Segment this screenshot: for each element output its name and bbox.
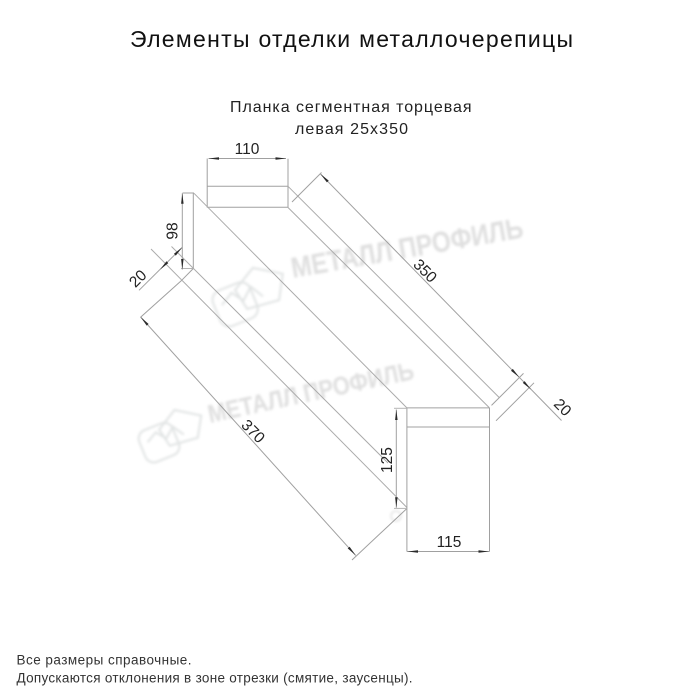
svg-text:110: 110 xyxy=(235,141,260,158)
svg-text:125: 125 xyxy=(379,447,396,473)
svg-text:Планка сегментная торцевая: Планка сегментная торцевая xyxy=(230,99,472,116)
svg-text:115: 115 xyxy=(437,534,462,551)
svg-text:Допускаются отклонения в зоне: Допускаются отклонения в зоне отрезки (с… xyxy=(17,671,413,686)
svg-text:98: 98 xyxy=(165,222,182,239)
svg-text:левая 25х350: левая 25х350 xyxy=(295,121,408,138)
svg-text:Все размеры справочные.: Все размеры справочные. xyxy=(17,653,192,668)
svg-text:Элементы отделки металлочерепи: Элементы отделки металлочерепицы xyxy=(130,26,573,52)
